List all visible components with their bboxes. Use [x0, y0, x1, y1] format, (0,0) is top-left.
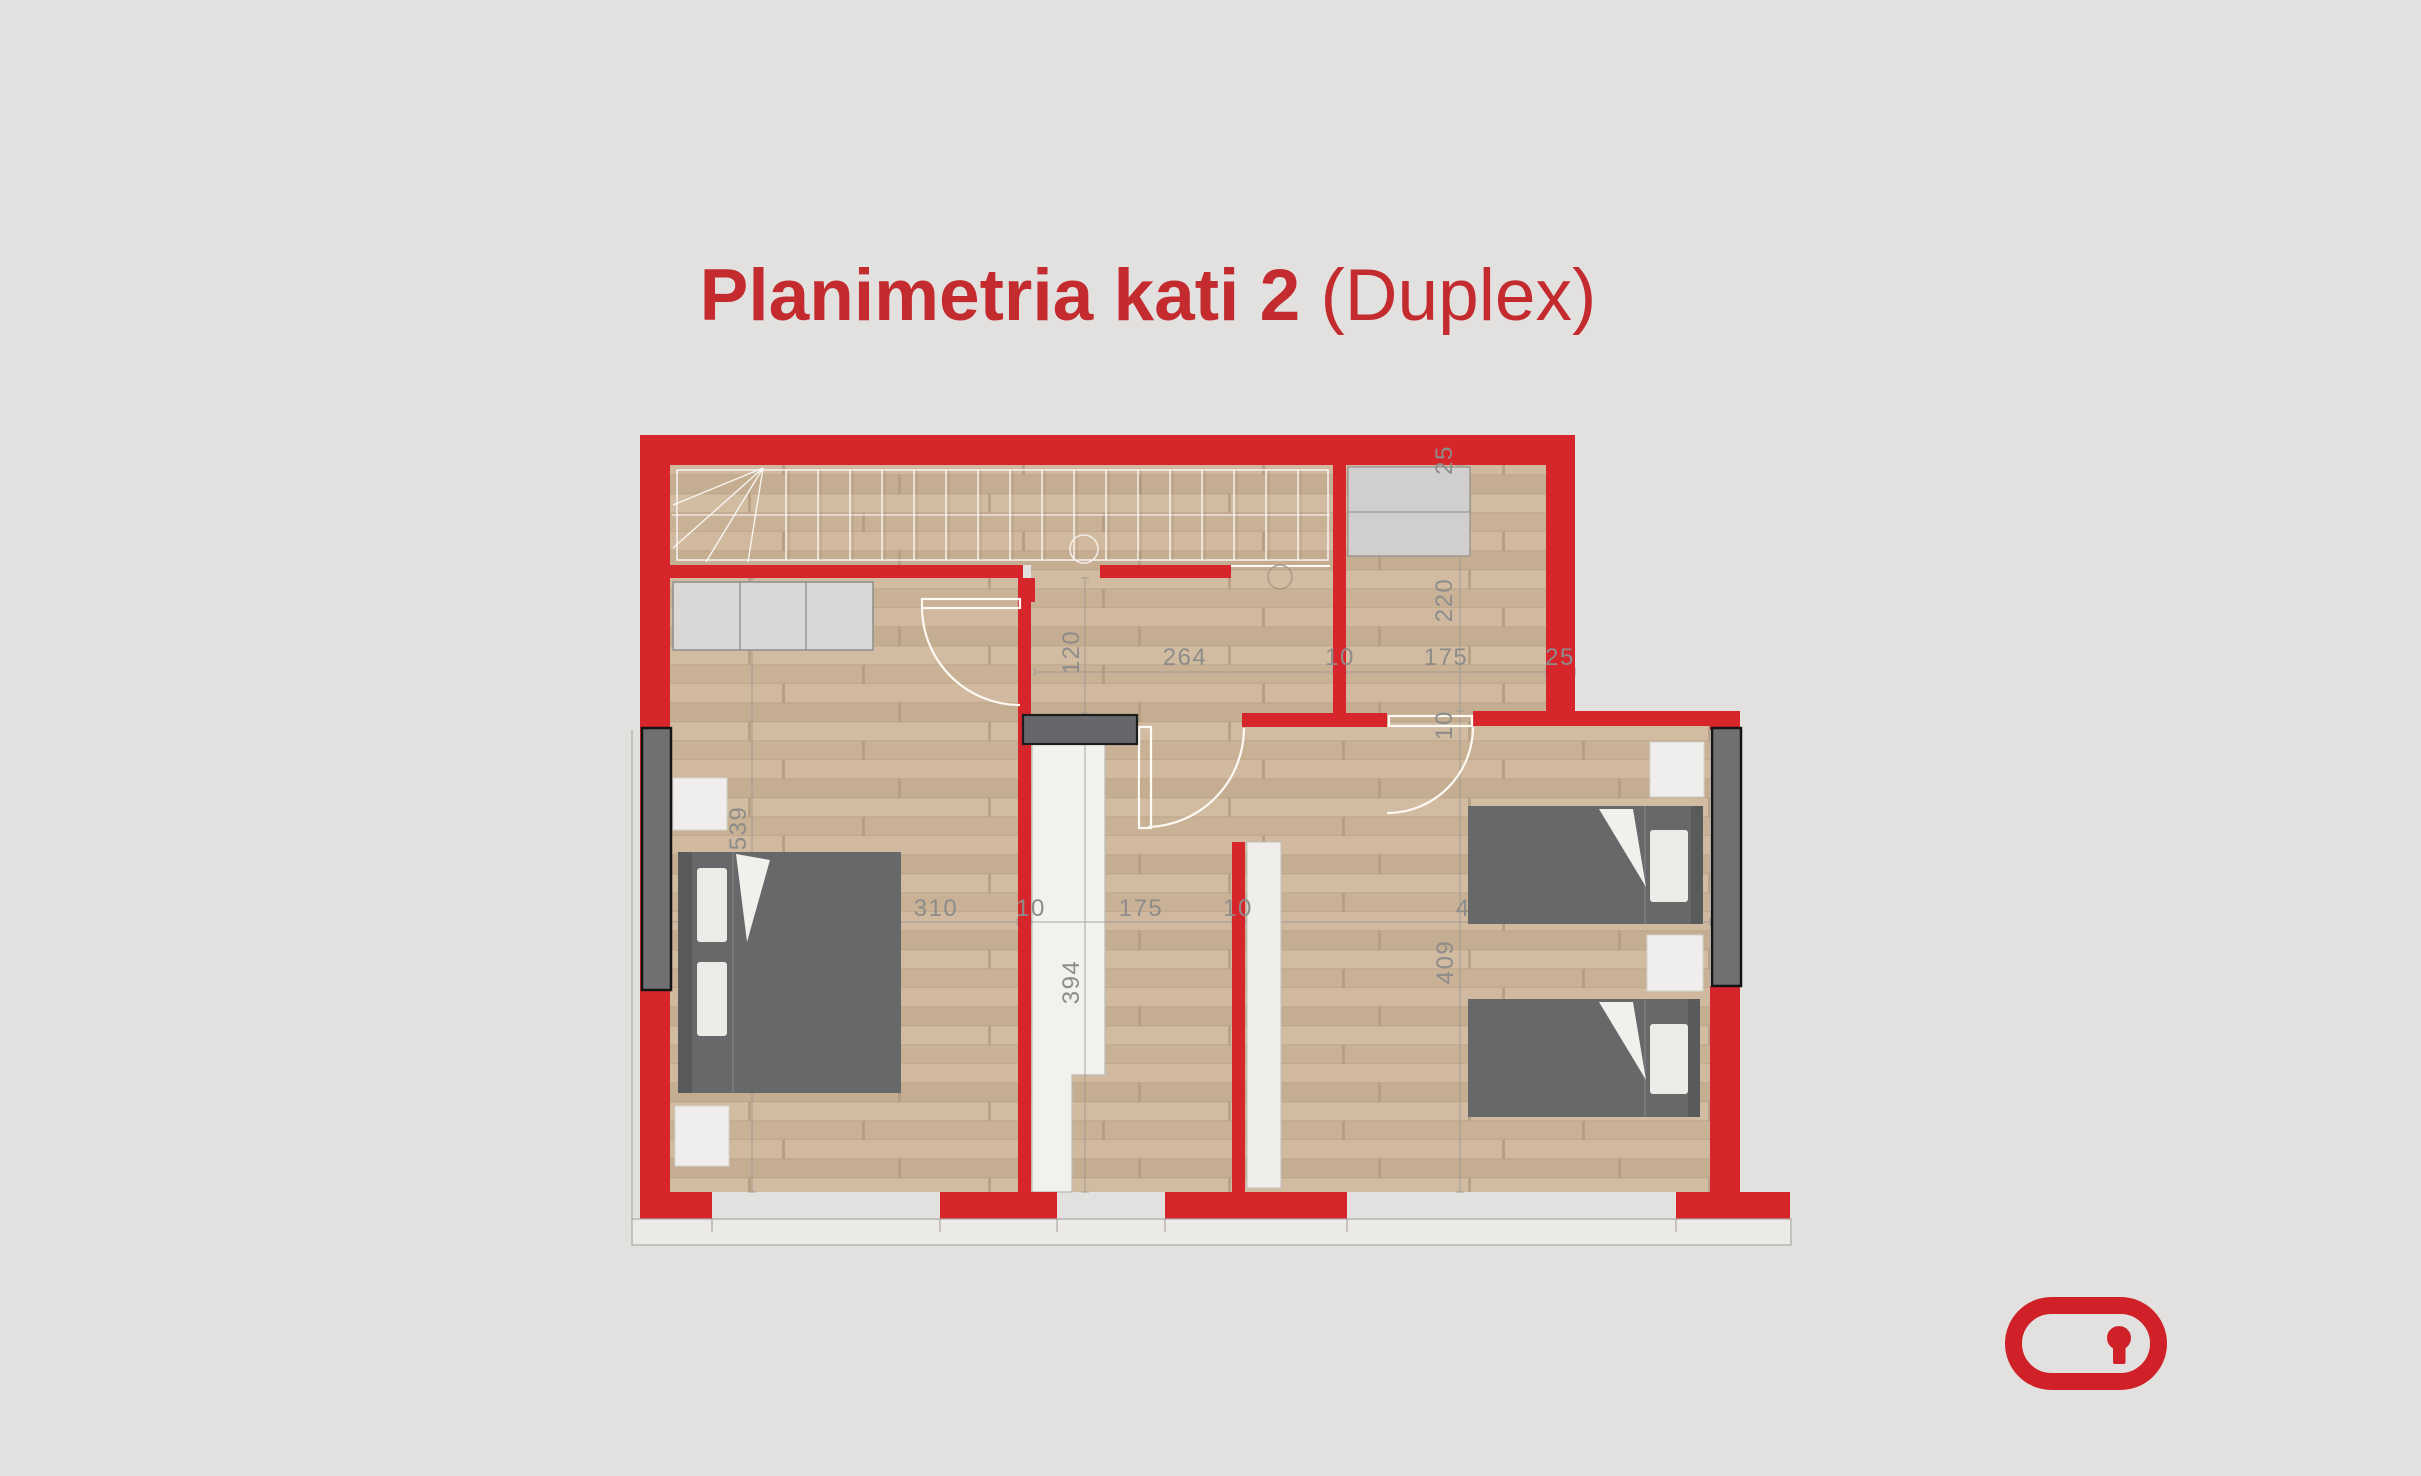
dimension-label: 310 — [914, 895, 959, 922]
dimension-label: 120 — [1058, 630, 1085, 675]
dimension-label: 10 — [1431, 710, 1458, 740]
pillow — [1650, 830, 1688, 902]
wall-bottom-seg-3 — [1676, 1192, 1790, 1219]
void-railing — [1023, 715, 1137, 744]
wall-top-right-room-left — [1333, 465, 1346, 713]
right-bedroom-floor — [1245, 711, 1710, 1192]
wall-right-bedroom-top — [1473, 711, 1737, 726]
dimension-label: 175 — [1119, 895, 1164, 922]
wall-bottom-seg-2 — [1165, 1192, 1347, 1219]
page-title-main: Planimetria kati 2 — [700, 255, 1321, 336]
double-bed-headboard — [678, 852, 692, 1093]
dimension-label: 25 — [1545, 644, 1575, 671]
pillow — [697, 868, 727, 942]
dimension-label: 10 — [1016, 895, 1046, 922]
dimension-label: 10 — [1223, 895, 1253, 922]
wall-under-stairs-left — [670, 565, 1023, 578]
right-bedroom-window — [1712, 728, 1741, 986]
dimension-label: 175 — [1424, 644, 1469, 671]
dimension-label: 25 — [1431, 445, 1458, 475]
wall-right-lower — [1710, 986, 1740, 1219]
wall-under-stairs-right — [1100, 565, 1231, 578]
right-bedroom-closet-strip — [1247, 842, 1281, 1188]
single-bed-2-headboard — [1688, 999, 1700, 1117]
page-title: Planimetria kati 2 (Duplex) — [700, 255, 1597, 336]
pillow — [1650, 1024, 1688, 1094]
brand-logo — [2014, 1306, 2159, 1382]
dimension-label: 539 — [725, 806, 752, 851]
wardrobe — [673, 582, 873, 650]
wall-bottom-seg-1 — [940, 1192, 1057, 1219]
logo-ring — [2014, 1306, 2159, 1382]
nightstand — [1647, 935, 1703, 991]
dimension-label: 264 — [1163, 644, 1208, 671]
left-bedroom-window — [642, 728, 671, 990]
nightstand — [673, 778, 727, 830]
dimension-label: 409 — [1432, 940, 1459, 985]
cabinet-top-right-room — [1348, 467, 1470, 556]
wall-left-bedroom-right — [1018, 578, 1031, 1192]
single-bed-2 — [1468, 999, 1700, 1117]
page: 25 220 10 264 10 175 25 120 539 310 10 1… — [0, 0, 2421, 1476]
wall-top-right-room-right — [1546, 435, 1575, 713]
floor-plan-canvas: 25 220 10 264 10 175 25 120 539 310 10 1… — [0, 0, 2421, 1476]
single-bed-1-headboard — [1691, 806, 1703, 924]
nightstand — [675, 1106, 729, 1166]
double-bed — [678, 852, 901, 1093]
nightstand — [1650, 742, 1704, 797]
wall-corridor-top — [1242, 713, 1387, 727]
wall-bottom-left — [640, 1192, 712, 1220]
bottom-window-band — [632, 1219, 1791, 1245]
keyhole-stem — [2113, 1345, 2126, 1364]
dimension-label: 394 — [1058, 960, 1085, 1005]
dimension-label: 10 — [1325, 644, 1355, 671]
dimension-label: 220 — [1431, 578, 1458, 623]
single-bed-1 — [1468, 806, 1703, 924]
page-title-suffix: (Duplex) — [1320, 255, 1596, 336]
pillow — [697, 962, 727, 1036]
